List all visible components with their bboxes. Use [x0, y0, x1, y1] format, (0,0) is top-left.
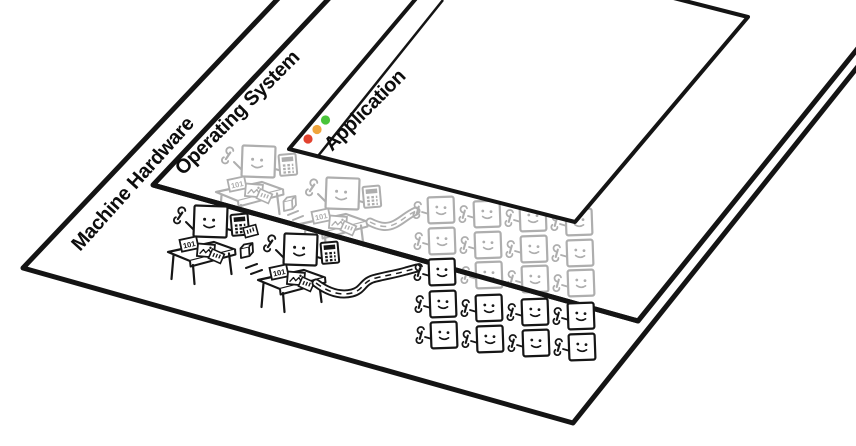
close-light-icon: [303, 134, 312, 143]
layered-architecture-diagram: 101 Machine Hardware Operating System: [0, 0, 856, 446]
minimize-light-icon: [312, 125, 321, 134]
zoom-light-icon: [321, 115, 330, 124]
diagram-canvas: 101 Machine Hardware Operating System: [0, 0, 856, 446]
